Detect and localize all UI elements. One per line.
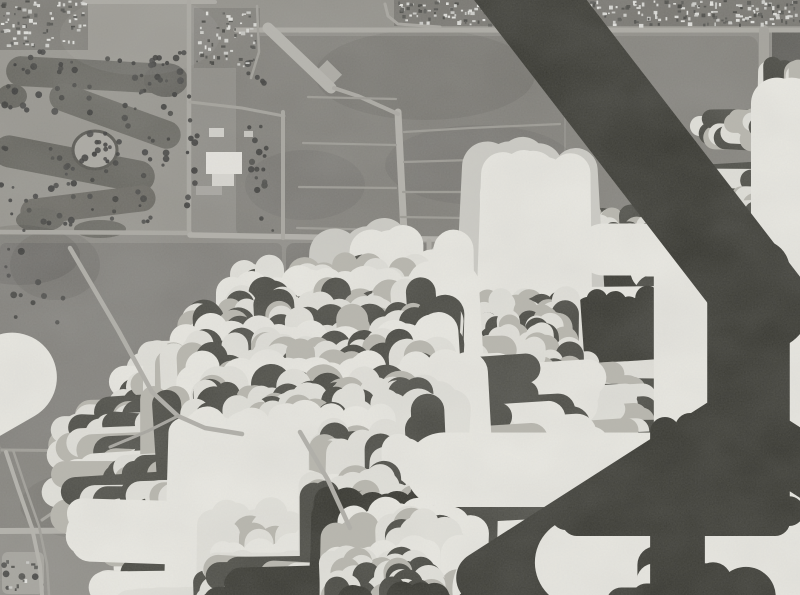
photo-grain-overlay (0, 0, 800, 595)
boneyard-scene (0, 0, 800, 595)
aerial-photograph (0, 0, 800, 595)
film-grain-overlay (0, 0, 800, 595)
